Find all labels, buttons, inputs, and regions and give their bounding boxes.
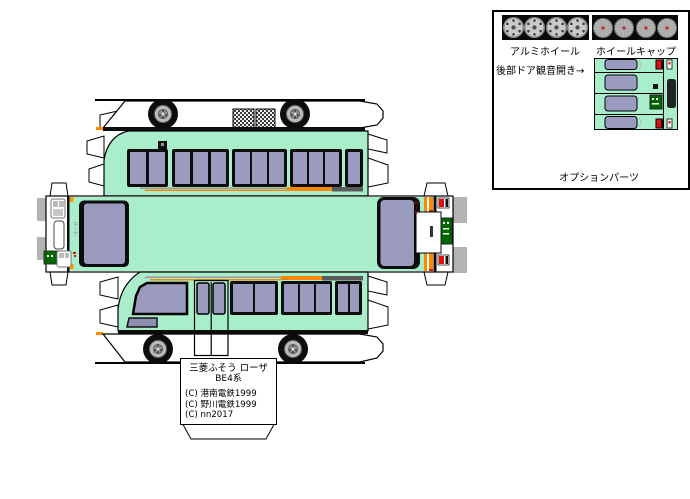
wheel-cap-icon <box>657 18 677 38</box>
wheel <box>143 334 173 364</box>
wheel <box>148 99 178 129</box>
wheel-cap-icon <box>593 18 613 38</box>
credit-line: (C) 港南電鉄1999 <box>185 389 277 400</box>
front-grille <box>54 221 64 249</box>
credit-line: (C) nn2017 <box>185 410 277 421</box>
wheel-cap-icon <box>614 18 634 38</box>
upper-window-band <box>127 149 363 187</box>
side-windshield <box>133 283 187 314</box>
front-rosa-logo: ローザ <box>72 221 78 236</box>
middle-row <box>44 196 453 272</box>
wheel-cap-icon <box>636 18 656 38</box>
underbody-strip-top <box>96 99 383 131</box>
front-view <box>44 196 129 272</box>
papercraft-sheet: ローザ ローザ 三菱ふそう ローザ BE4系 (C) 港南電鉄1999 (C) … <box>0 0 690 499</box>
title-box: 三菱ふそう ローザ BE4系 (C) 港南電鉄1999 (C) 野川電鉄1999… <box>180 358 277 424</box>
model-series: BE4系 <box>180 374 277 384</box>
aluminum-wheel-icon <box>524 17 545 38</box>
rear-license-plate <box>441 218 452 244</box>
aluminum-wheel-icon <box>546 17 567 38</box>
upper-side-view <box>104 131 368 196</box>
roof-vent <box>233 109 254 130</box>
lower-side-view <box>96 272 368 335</box>
front-quarter-window <box>127 318 157 327</box>
front-license-plate <box>44 251 58 264</box>
wheel-cap-label: ホイールキャップ <box>590 43 682 58</box>
wheel <box>280 99 310 129</box>
model-name: 三菱ふそう ローザ <box>180 363 277 374</box>
aluminum-wheels-part <box>502 15 589 40</box>
rear-door-option-part <box>594 58 678 130</box>
license-plate <box>650 95 662 109</box>
aluminum-wheel-icon <box>567 17 588 38</box>
rear-rosa-logo: ローザ <box>413 200 419 215</box>
wheelcap-part <box>592 15 678 40</box>
options-box: アルミホイール ホイールキャップ 後部ドア観音開き→ <box>492 10 690 190</box>
engine-hatch <box>416 212 441 253</box>
aluminum-wheel-icon <box>503 17 524 38</box>
options-box-label: オプションパーツ <box>534 169 664 184</box>
lower-window-band <box>230 281 362 315</box>
credit-line: (C) 野川電鉄1999 <box>185 400 277 411</box>
aluminum-wheel-label: アルミホイール <box>497 43 593 58</box>
roof-vent <box>256 109 275 130</box>
rear-door-note: 後部ドア観音開き→ <box>496 62 584 77</box>
wheel <box>278 334 308 364</box>
